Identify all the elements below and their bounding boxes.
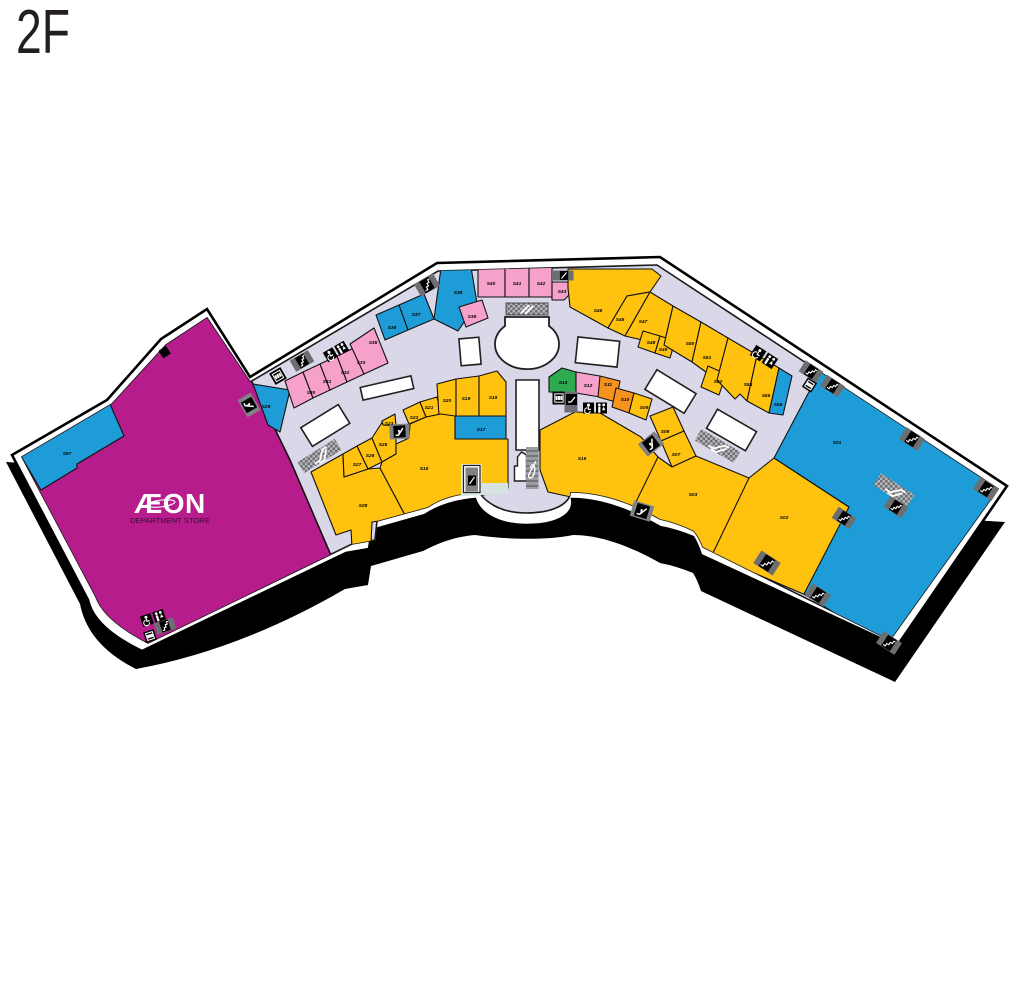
svg-text:S39: S39	[468, 314, 477, 320]
svg-text:DEPARTMENT STORE: DEPARTMENT STORE	[130, 516, 210, 525]
svg-text:S47: S47	[639, 319, 648, 325]
svg-text:S26: S26	[366, 453, 375, 459]
svg-text:S13: S13	[559, 380, 568, 386]
svg-text:S29: S29	[262, 404, 271, 410]
svg-text:S40: S40	[487, 281, 496, 287]
svg-text:S51: S51	[703, 355, 712, 361]
svg-text:S28: S28	[359, 503, 368, 509]
svg-text:S50: S50	[686, 341, 695, 347]
svg-text:S01: S01	[833, 440, 842, 446]
svg-text:S27: S27	[353, 462, 362, 468]
svg-text:S55: S55	[762, 393, 771, 399]
svg-text:S35: S35	[369, 340, 378, 346]
svg-text:S49: S49	[659, 347, 668, 353]
svg-text:S38: S38	[454, 290, 463, 296]
svg-text:S53: S53	[744, 382, 753, 388]
svg-text:S16: S16	[420, 466, 429, 472]
svg-text:S08: S08	[661, 429, 670, 435]
svg-text:S36: S36	[388, 325, 397, 331]
svg-text:S09: S09	[640, 405, 649, 411]
svg-text:S30: S30	[307, 390, 316, 396]
svg-text:2F: 2F	[16, 0, 70, 67]
svg-text:S02: S02	[780, 515, 789, 521]
svg-text:S19: S19	[462, 396, 471, 402]
svg-text:S56: S56	[774, 402, 783, 408]
svg-text:ÆON: ÆON	[134, 488, 206, 519]
svg-text:S25: S25	[379, 442, 388, 448]
svg-text:S07: S07	[672, 452, 681, 458]
svg-text:S48: S48	[647, 340, 656, 346]
svg-text:S11: S11	[604, 382, 613, 388]
svg-text:S17: S17	[477, 427, 486, 433]
svg-text:S41: S41	[513, 281, 522, 287]
svg-text:S52: S52	[714, 379, 723, 385]
svg-text:S20: S20	[443, 398, 452, 404]
svg-text:S33: S33	[357, 360, 366, 366]
svg-text:S21: S21	[425, 405, 434, 411]
svg-text:S37: S37	[412, 312, 421, 318]
svg-text:S15: S15	[578, 456, 587, 462]
svg-text:S45: S45	[594, 308, 603, 314]
svg-text:S43: S43	[558, 289, 567, 295]
svg-text:S12: S12	[584, 383, 593, 389]
svg-text:S10: S10	[621, 397, 630, 403]
svg-text:S57: S57	[63, 451, 72, 457]
svg-text:S32: S32	[341, 370, 350, 376]
svg-text:S31: S31	[323, 379, 332, 385]
svg-text:S42: S42	[537, 281, 546, 287]
svg-text:S03: S03	[689, 492, 698, 498]
svg-text:S46: S46	[616, 317, 625, 323]
svg-text:S18: S18	[489, 395, 498, 401]
svg-text:S23: S23	[385, 421, 394, 427]
svg-text:S22: S22	[410, 415, 419, 421]
